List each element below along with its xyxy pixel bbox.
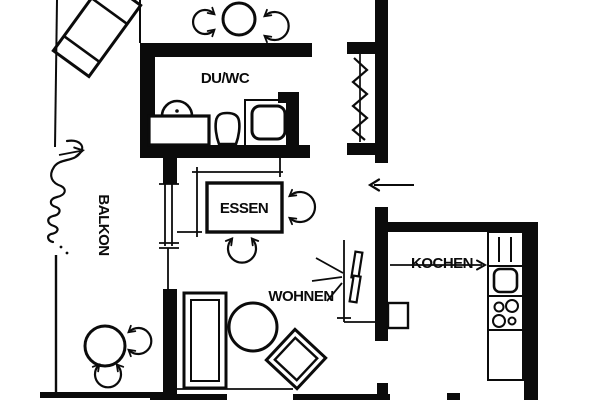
wall-shower-right [286, 92, 299, 145]
room-label-duwc: DU/WC [201, 70, 250, 87]
door-swing-line [316, 258, 343, 273]
wall-bottom-stub [377, 383, 388, 400]
wall-hall-right [375, 0, 388, 163]
squiggle-arrow [59, 151, 80, 155]
squiggle-dot [66, 252, 69, 255]
wall-exterior-left-lower [163, 289, 177, 400]
chair-arc [291, 192, 315, 222]
kitchen-wall-unit [388, 303, 408, 328]
chair-arc [266, 12, 289, 40]
chair-arc [130, 328, 151, 354]
chair-arc [193, 10, 213, 34]
chair-arc [228, 240, 256, 263]
lounger-footrest-line [64, 36, 100, 62]
door-leaf-lower [350, 276, 361, 303]
room-label-wohnen: WOHNEN [268, 288, 333, 305]
wall-bottom-right-stub [447, 393, 460, 400]
terrace-set [193, 3, 289, 40]
squiggle-dot [60, 246, 63, 249]
bathroom-fixtures [149, 100, 287, 145]
sink-icon [494, 269, 517, 292]
plant-squiggle [48, 141, 82, 242]
sofa-inner [191, 300, 219, 381]
wall-exterior-left-upper [163, 150, 177, 184]
wall-bottom-center [293, 394, 390, 400]
door-leaf-upper [351, 252, 362, 279]
chair-arc [95, 366, 121, 387]
balcony-table [85, 326, 125, 366]
room-label-kochen: KOCHEN [411, 255, 473, 272]
room-label-balkon: BALKON [95, 194, 112, 255]
living-room [184, 240, 375, 389]
wall-hall-bottom [347, 143, 388, 155]
wall-kitchen-top [388, 222, 538, 232]
coffee-table [229, 303, 277, 351]
shower-tray-icon [252, 106, 285, 139]
balcony-left-edge [55, 0, 57, 147]
terrace-table [223, 3, 255, 35]
washbasin-icon [162, 101, 192, 116]
room-label-essen: ESSEN [220, 200, 268, 217]
floor-plan: BALKON DU/WC ESSEN WOHNEN KOCHEN [0, 0, 600, 400]
wall-duwc-top [140, 43, 312, 57]
lounger-headrest-line [92, 0, 128, 24]
vanity-unit [149, 116, 209, 145]
walls [40, 0, 538, 400]
washbasin-tap [175, 109, 179, 113]
toilet-icon [216, 113, 240, 144]
wall-exterior-right [524, 222, 538, 400]
lounger [53, 0, 140, 77]
wall-kitchen-left [375, 207, 388, 341]
floorplan-svg: BALKON DU/WC ESSEN WOHNEN KOCHEN [0, 0, 600, 400]
door-swing-line [312, 277, 342, 281]
balcony-bottom-edge [40, 392, 163, 398]
